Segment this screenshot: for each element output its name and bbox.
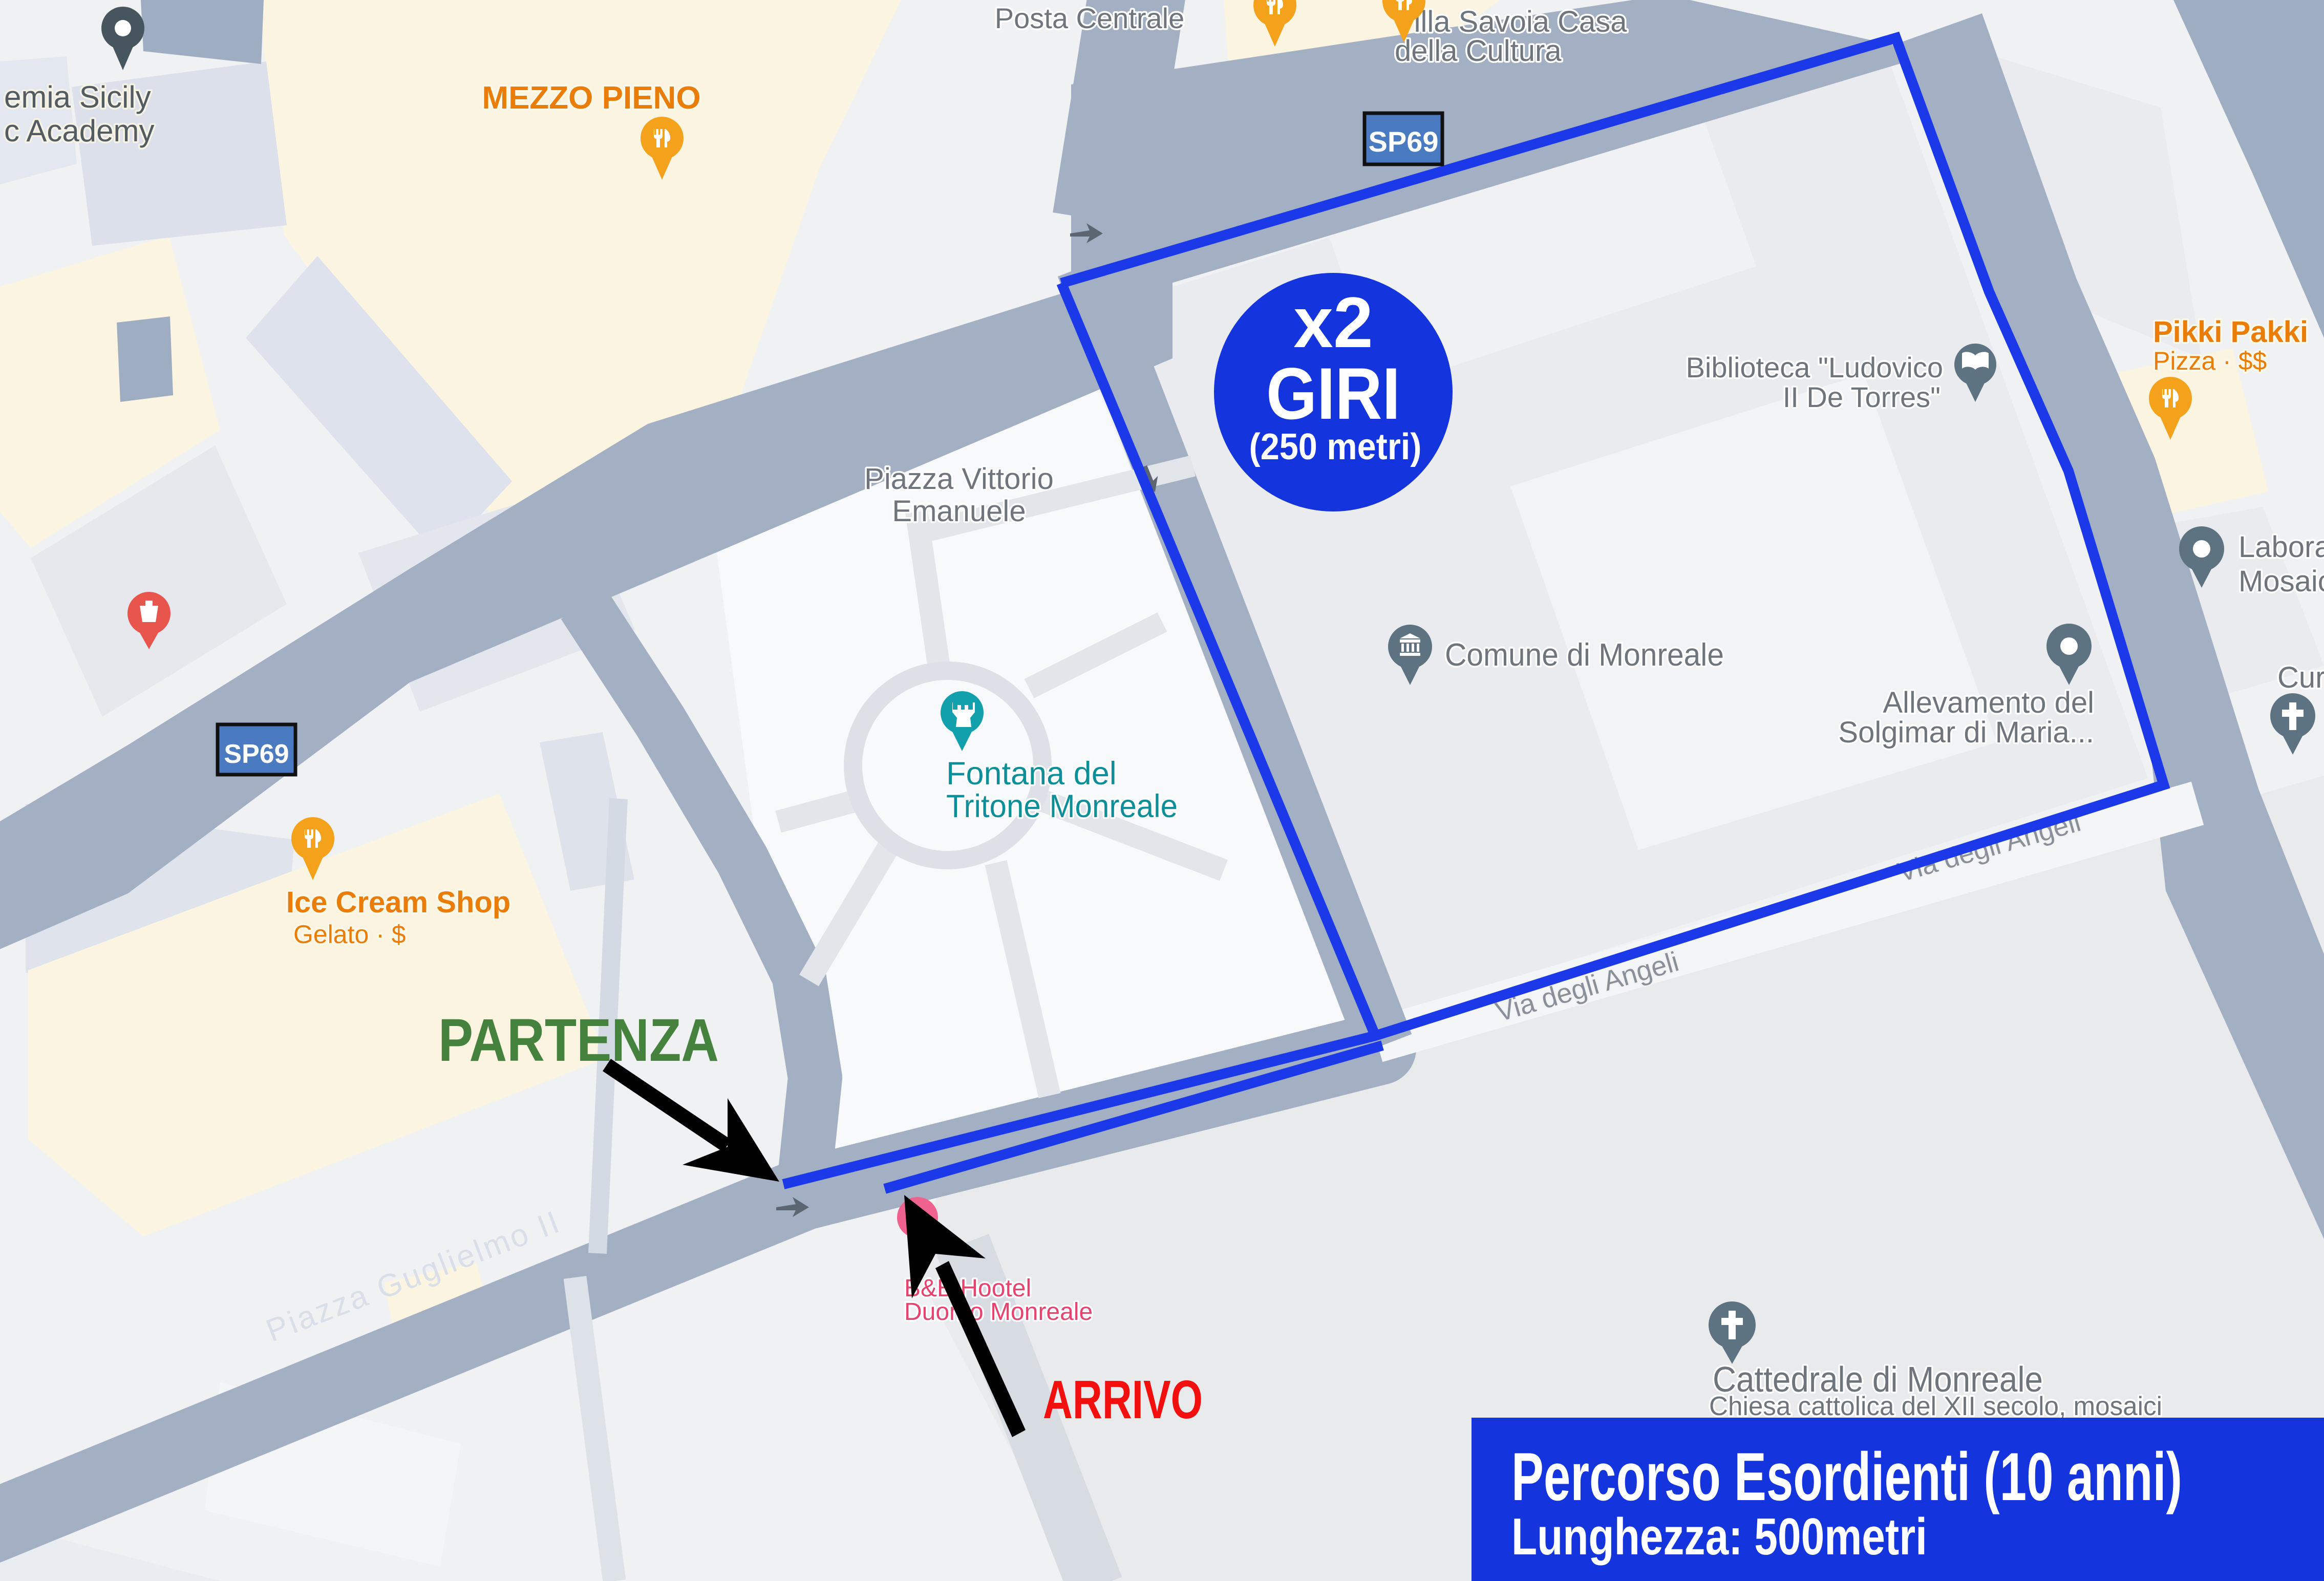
svg-text:Labora: Labora: [2238, 530, 2324, 564]
svg-text:Curi: Curi: [2277, 661, 2324, 694]
svg-text:Duomo Monreale: Duomo Monreale: [904, 1298, 1093, 1326]
svg-text:Lunghezza: 500metri: Lunghezza: 500metri: [1511, 1508, 1927, 1566]
svg-text:Tritone Monreale: Tritone Monreale: [946, 788, 1178, 824]
svg-text:SP69: SP69: [1369, 125, 1439, 158]
svg-text:Piazza Vittorio: Piazza Vittorio: [864, 462, 1054, 496]
svg-text:Emanuele: Emanuele: [892, 495, 1026, 528]
svg-text:emia Sicily: emia Sicily: [4, 80, 151, 114]
svg-text:II De Torres": II De Torres": [1783, 381, 1941, 413]
svg-text:Percorso Esordienti (10 anni): Percorso Esordienti (10 anni): [1511, 1439, 2182, 1515]
svg-text:(250 metri): (250 metri): [1249, 426, 1422, 467]
svg-text:Solgimar di Maria...: Solgimar di Maria...: [1838, 716, 2094, 749]
svg-text:MEZZO PIENO: MEZZO PIENO: [482, 80, 700, 116]
svg-text:Fontana del: Fontana del: [946, 756, 1117, 792]
svg-text:PARTENZA: PARTENZA: [438, 1007, 719, 1074]
svg-text:Mosaic: Mosaic: [2238, 565, 2324, 598]
svg-text:Posta Centrale: Posta Centrale: [995, 2, 1184, 34]
svg-text:Comune di Monreale: Comune di Monreale: [1445, 637, 1724, 673]
svg-text:x2: x2: [1293, 282, 1373, 362]
svg-text:Pizza · $$: Pizza · $$: [2153, 347, 2267, 375]
svg-text:Villa Savoia Casa: Villa Savoia Casa: [1395, 5, 1627, 38]
svg-text:SP69: SP69: [224, 739, 289, 769]
svg-text:Chiesa cattolica del XII secol: Chiesa cattolica del XII secolo, mosaici: [1709, 1392, 2162, 1421]
svg-text:Biblioteca "Ludovico: Biblioteca "Ludovico: [1686, 351, 1943, 383]
svg-text:Ice Cream Shop: Ice Cream Shop: [286, 886, 510, 919]
svg-text:Allevamento del: Allevamento del: [1883, 686, 2094, 719]
svg-text:Gelato · $: Gelato · $: [293, 920, 406, 949]
svg-text:c Academy: c Academy: [4, 114, 154, 148]
svg-text:ARRIVO: ARRIVO: [1043, 1370, 1203, 1430]
svg-text:della Cultura: della Cultura: [1395, 34, 1562, 68]
svg-text:Pikki Pakki: Pikki Pakki: [2153, 315, 2308, 349]
svg-text:GIRI: GIRI: [1266, 353, 1400, 435]
